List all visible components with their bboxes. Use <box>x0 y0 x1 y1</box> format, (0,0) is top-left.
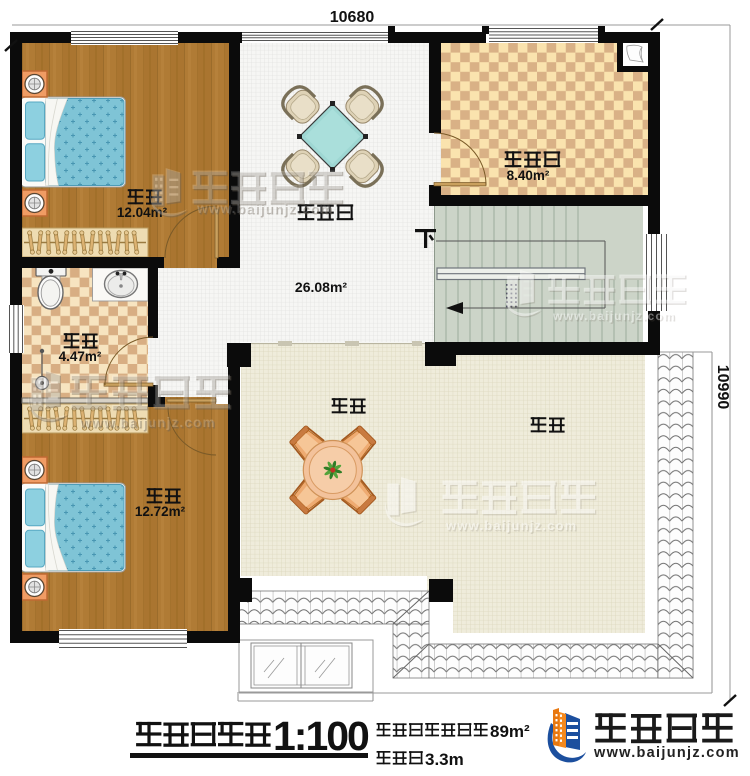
svg-text:26.08m²: 26.08m² <box>295 279 347 295</box>
svg-text:8.40m²: 8.40m² <box>507 168 550 183</box>
svg-text:www.baijunjz.com: www.baijunjz.com <box>552 309 676 323</box>
svg-text:10990: 10990 <box>714 365 731 410</box>
svg-text:www.baijunjz.com: www.baijunjz.com <box>593 745 740 761</box>
svg-text:4.47m²: 4.47m² <box>59 349 102 364</box>
svg-text:www.baijunjz.com: www.baijunjz.com <box>196 201 333 216</box>
svg-text:10680: 10680 <box>330 9 375 26</box>
svg-text:12.72m²: 12.72m² <box>135 504 186 519</box>
svg-text:1:100: 1:100 <box>273 713 369 759</box>
svg-text:89m²: 89m² <box>490 722 530 741</box>
svg-text:www.baijunjz.com: www.baijunjz.com <box>445 518 577 533</box>
svg-text:3.3m: 3.3m <box>425 750 464 769</box>
svg-text:www.baijunjz.com: www.baijunjz.com <box>79 415 216 430</box>
